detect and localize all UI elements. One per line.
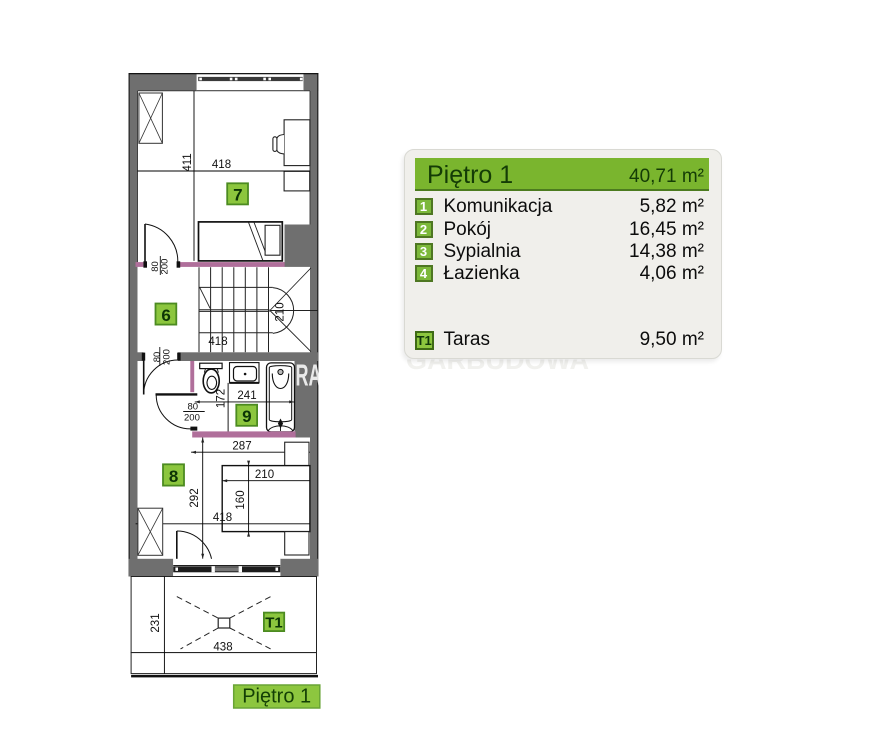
svg-text:T1: T1 <box>265 614 283 631</box>
svg-text:287: 287 <box>232 441 251 453</box>
svg-text:200: 200 <box>184 413 200 424</box>
svg-text:411: 411 <box>182 153 194 171</box>
svg-text:231: 231 <box>150 613 162 632</box>
svg-text:80: 80 <box>188 402 199 413</box>
svg-text:438: 438 <box>213 642 232 654</box>
svg-text:8: 8 <box>169 467 178 486</box>
svg-text:210: 210 <box>275 302 287 321</box>
svg-text:292: 292 <box>189 488 201 507</box>
svg-text:160: 160 <box>235 490 247 509</box>
svg-text:RA: RA <box>296 358 322 393</box>
svg-text:418: 418 <box>213 512 232 524</box>
svg-text:200: 200 <box>162 349 173 365</box>
svg-text:Piętro 1: Piętro 1 <box>242 686 311 708</box>
svg-text:7: 7 <box>233 186 242 205</box>
svg-text:241: 241 <box>237 390 256 402</box>
svg-text:9: 9 <box>242 407 251 426</box>
svg-text:418: 418 <box>208 336 227 348</box>
svg-text:210: 210 <box>255 469 274 481</box>
svg-text:418: 418 <box>212 159 231 171</box>
svg-text:172: 172 <box>216 389 228 408</box>
svg-text:200: 200 <box>160 259 171 275</box>
svg-text:6: 6 <box>161 306 170 325</box>
